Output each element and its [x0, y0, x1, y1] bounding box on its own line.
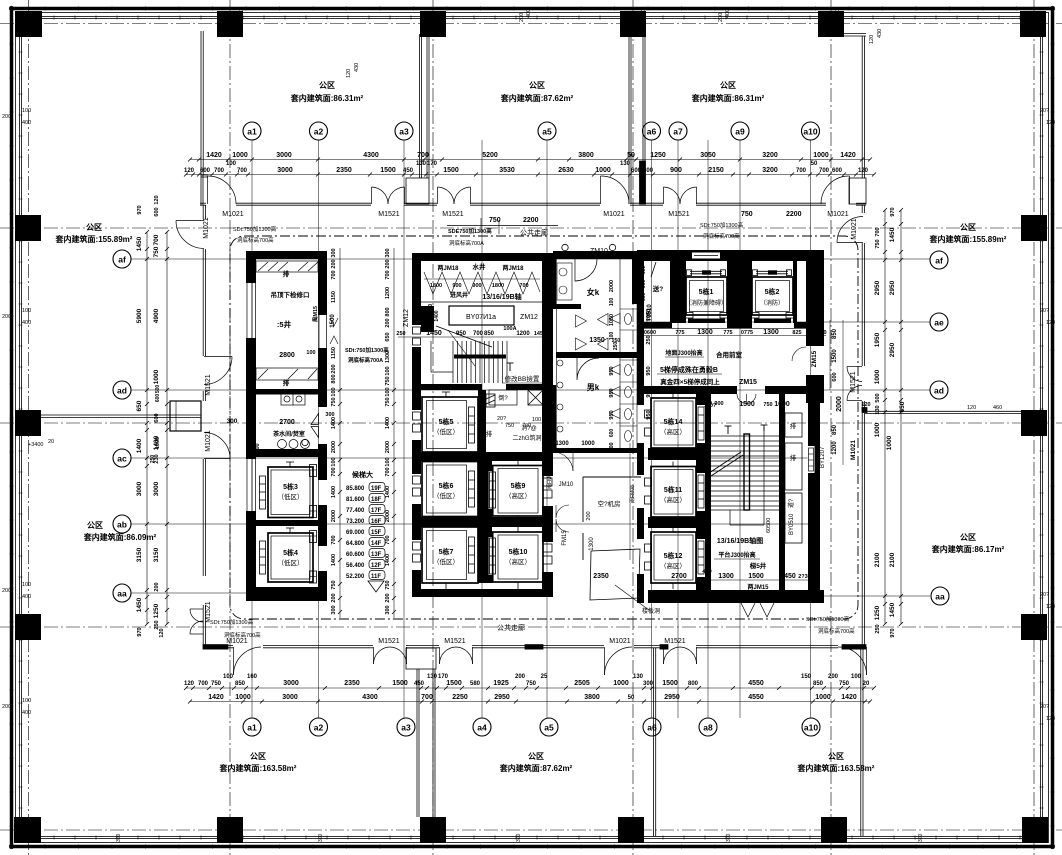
- svg-text:梯5井: 梯5井: [750, 561, 767, 570]
- svg-text:M1521: M1521: [850, 371, 857, 393]
- svg-text:50: 50: [811, 161, 818, 167]
- svg-text:3000: 3000: [277, 167, 293, 174]
- svg-text:a5: a5: [544, 723, 554, 733]
- svg-text:5梯停成殊在勇毅B: 5梯停成殊在勇毅B: [660, 365, 718, 374]
- svg-text:M1521: M1521: [205, 374, 212, 396]
- svg-text:修改BB撿置: 修改BB撿置: [505, 374, 540, 383]
- svg-text:M1021: M1021: [609, 638, 631, 645]
- svg-text:a6: a6: [647, 127, 657, 137]
- svg-text:5栋5: 5栋5: [439, 417, 454, 426]
- svg-text:600: 600: [832, 372, 838, 381]
- svg-text:100: 100: [385, 457, 391, 466]
- svg-text:300: 300: [385, 248, 391, 257]
- svg-text:60.600: 60.600: [346, 552, 365, 558]
- svg-text:700: 700: [796, 168, 807, 174]
- svg-text:200: 200: [828, 13, 834, 22]
- svg-text:2350: 2350: [336, 167, 352, 174]
- svg-text:300: 300: [255, 443, 261, 452]
- svg-text:送?: 送?: [652, 284, 664, 293]
- svg-text:100: 100: [22, 582, 31, 588]
- svg-text:1000: 1000: [235, 694, 251, 701]
- svg-text:1400: 1400: [153, 435, 160, 450]
- svg-text:3000: 3000: [283, 680, 299, 687]
- svg-text:52.200: 52.200: [346, 574, 365, 580]
- svg-text:BY0510: BY0510: [789, 513, 795, 535]
- svg-text:兩FM06: 兩FM06: [547, 523, 553, 541]
- svg-text:1250: 1250: [650, 152, 666, 159]
- svg-text:ZM15: ZM15: [739, 379, 757, 386]
- svg-text:750: 750: [741, 211, 753, 218]
- svg-text:1800: 1800: [430, 283, 442, 289]
- svg-text:970: 970: [137, 205, 143, 214]
- svg-text:1000: 1000: [581, 441, 595, 447]
- svg-text:700: 700: [385, 535, 391, 544]
- svg-text:850: 850: [832, 424, 838, 435]
- svg-text:100: 100: [226, 161, 237, 167]
- svg-text:700: 700: [875, 227, 881, 236]
- svg-text:1250: 1250: [874, 605, 881, 620]
- svg-text:850: 850: [484, 331, 495, 337]
- svg-text:2000: 2000: [385, 441, 391, 453]
- svg-text:850: 850: [832, 328, 838, 339]
- svg-text:1450: 1450: [534, 331, 546, 337]
- svg-text:1300: 1300: [589, 537, 595, 551]
- svg-text:吊顶下检修口: 吊顶下检修口: [271, 290, 310, 299]
- svg-text:地面J300抬高: 地面J300抬高: [665, 349, 702, 357]
- svg-text:（高区）: （高区）: [505, 491, 531, 500]
- svg-text:120: 120: [869, 35, 875, 44]
- svg-text:套内建筑面:155.89m²: 套内建筑面:155.89m²: [929, 234, 1007, 244]
- svg-text:700: 700: [331, 270, 337, 279]
- svg-text:775: 775: [723, 330, 732, 336]
- svg-text:775: 775: [675, 330, 684, 336]
- svg-text:a3: a3: [401, 723, 411, 733]
- svg-text:3800: 3800: [584, 694, 600, 701]
- svg-text:道?: 道?: [787, 498, 795, 508]
- svg-text:20?: 20?: [1040, 592, 1049, 598]
- svg-text:（消防）: （消防）: [760, 299, 784, 307]
- svg-text:300: 300: [227, 418, 238, 425]
- svg-text:750: 750: [331, 397, 337, 406]
- svg-text:ZM12: ZM12: [403, 309, 410, 327]
- svg-text:套内建筑面:87.62m²: 套内建筑面:87.62m²: [500, 93, 574, 103]
- svg-text:800: 800: [546, 276, 552, 285]
- svg-text:2250: 2250: [452, 694, 468, 701]
- svg-text:1150: 1150: [331, 347, 337, 359]
- svg-text:1450: 1450: [136, 597, 143, 612]
- svg-text:SDt:750加1300高: SDt:750加1300高: [806, 615, 850, 623]
- svg-text:970: 970: [890, 207, 896, 216]
- svg-text:200: 200: [154, 582, 160, 591]
- svg-text:200: 200: [586, 511, 592, 520]
- svg-text:950: 950: [609, 410, 615, 419]
- svg-text:套内建筑面:155.89m²: 套内建筑面:155.89m²: [55, 234, 133, 244]
- svg-text:公区: 公区: [960, 533, 976, 542]
- svg-text:650: 650: [385, 332, 391, 341]
- svg-text:2200: 2200: [523, 217, 539, 224]
- svg-text:950: 950: [609, 366, 615, 375]
- svg-text:19F: 19F: [371, 486, 382, 492]
- svg-text:2505: 2505: [574, 680, 590, 687]
- svg-text:250: 250: [646, 335, 652, 344]
- svg-text:120: 120: [346, 69, 352, 78]
- svg-text:700: 700: [473, 331, 484, 337]
- svg-text:M1021: M1021: [851, 218, 858, 240]
- svg-text:ZM12: ZM12: [520, 314, 538, 321]
- svg-text:洞底标高700A: 洞底标高700A: [449, 239, 484, 247]
- svg-text:1400: 1400: [331, 554, 337, 566]
- svg-text:700: 700: [331, 535, 337, 544]
- svg-text:300: 300: [426, 833, 432, 842]
- svg-text:18F: 18F: [371, 497, 382, 503]
- svg-text:兩FM08: 兩FM08: [630, 485, 636, 503]
- svg-text:200: 200: [331, 259, 337, 268]
- svg-text:950: 950: [609, 388, 615, 397]
- svg-text:950: 950: [646, 366, 652, 375]
- svg-text:合用前室: 合用前室: [715, 350, 743, 359]
- svg-text:0775: 0775: [741, 330, 753, 336]
- svg-text:25: 25: [541, 674, 548, 680]
- svg-text:1000: 1000: [613, 680, 629, 687]
- svg-text:69.000: 69.000: [346, 530, 365, 536]
- svg-text:（低区）: （低区）: [278, 558, 304, 567]
- svg-text:1000: 1000: [815, 694, 831, 701]
- svg-text::5井: :5井: [277, 319, 292, 329]
- svg-text:750: 750: [875, 239, 881, 248]
- svg-text:5栋14: 5栋14: [664, 417, 683, 426]
- svg-text:300: 300: [918, 833, 924, 842]
- svg-text:平台J300抬高: 平台J300抬高: [718, 551, 755, 559]
- svg-text:5栋2: 5栋2: [765, 287, 780, 296]
- svg-text:170: 170: [427, 161, 438, 167]
- svg-text:200: 200: [385, 593, 391, 602]
- svg-text:1300: 1300: [385, 351, 391, 363]
- svg-text:1300: 1300: [718, 573, 734, 580]
- svg-text:1400: 1400: [331, 486, 337, 498]
- svg-text:a7: a7: [673, 127, 683, 137]
- svg-text:ad: ad: [117, 386, 127, 396]
- svg-text:2700: 2700: [671, 573, 687, 580]
- svg-text:300: 300: [628, 833, 634, 842]
- svg-text:900: 900: [472, 283, 481, 289]
- svg-text:SDt:750加1300高: SDt:750加1300高: [233, 225, 277, 233]
- svg-text:120: 120: [154, 195, 160, 204]
- svg-text:400: 400: [22, 320, 31, 326]
- svg-text:2000: 2000: [609, 280, 615, 292]
- svg-text:200: 200: [828, 674, 839, 680]
- svg-text:排: 排: [283, 269, 290, 278]
- svg-text:750: 750: [526, 681, 537, 687]
- svg-text:200: 200: [515, 674, 526, 680]
- svg-text:300: 300: [817, 330, 826, 336]
- svg-text:750: 750: [331, 580, 337, 589]
- svg-text:M1021: M1021: [203, 217, 210, 239]
- svg-text:1300: 1300: [697, 329, 713, 336]
- svg-text:1050: 1050: [609, 314, 615, 326]
- svg-text:ad: ad: [934, 386, 944, 396]
- svg-text:600: 600: [609, 429, 615, 438]
- svg-text:排: 排: [283, 378, 290, 387]
- svg-text:4900: 4900: [153, 308, 160, 323]
- svg-text:850: 850: [235, 681, 246, 687]
- svg-text:250: 250: [613, 342, 619, 351]
- svg-text:2950: 2950: [494, 694, 510, 701]
- svg-text:1000: 1000: [700, 401, 712, 407]
- svg-text:600: 600: [832, 168, 843, 174]
- svg-text:16F: 16F: [371, 519, 382, 525]
- svg-text:200: 200: [385, 259, 391, 268]
- svg-text:a5: a5: [542, 127, 552, 137]
- svg-text:120: 120: [967, 405, 976, 411]
- svg-text:1400: 1400: [385, 554, 391, 566]
- svg-text:60500: 60500: [766, 518, 772, 533]
- svg-text:400: 400: [526, 9, 532, 18]
- svg-text:14F: 14F: [371, 541, 382, 547]
- svg-text:600: 600: [155, 394, 161, 403]
- svg-text:两JM18: 两JM18: [502, 265, 524, 272]
- svg-text:700: 700: [153, 234, 160, 245]
- svg-text:700: 700: [519, 283, 528, 289]
- svg-text:5栋7: 5栋7: [439, 547, 454, 556]
- svg-text:公区: 公区: [529, 81, 545, 90]
- svg-text:公区: 公区: [720, 81, 736, 90]
- svg-text:公区: 公区: [319, 81, 335, 90]
- svg-text:700: 700: [522, 423, 531, 429]
- svg-text:2350: 2350: [344, 680, 360, 687]
- svg-text:77.400: 77.400: [346, 508, 365, 514]
- svg-text:公区: 公区: [960, 223, 976, 232]
- svg-text:套内建筑面:163.58m²: 套内建筑面:163.58m²: [219, 763, 297, 773]
- svg-text:2950: 2950: [874, 280, 881, 295]
- svg-text:1000: 1000: [886, 435, 893, 450]
- svg-text:450: 450: [403, 168, 414, 174]
- svg-text:300: 300: [331, 605, 337, 614]
- svg-text:400: 400: [239, 9, 245, 18]
- svg-text:200: 200: [519, 13, 525, 22]
- svg-text:空?机房: 空?机房: [597, 499, 620, 508]
- svg-text:64.800: 64.800: [346, 541, 365, 547]
- svg-text:M1521: M1521: [664, 638, 686, 645]
- svg-text:1000: 1000: [874, 422, 881, 437]
- svg-text:700: 700: [421, 694, 433, 701]
- svg-text:1420: 1420: [840, 152, 856, 159]
- svg-text:（低区）: （低区）: [433, 557, 459, 566]
- svg-text:aa: aa: [935, 592, 945, 602]
- svg-text:750: 750: [211, 681, 222, 687]
- svg-text:M1521: M1521: [668, 211, 690, 218]
- svg-text:750: 750: [385, 397, 391, 406]
- svg-text:0600: 0600: [644, 330, 656, 336]
- svg-text:20?: 20?: [1040, 108, 1049, 114]
- svg-text:ac: ac: [117, 454, 127, 464]
- svg-text:900: 900: [670, 167, 682, 174]
- svg-text:300: 300: [331, 248, 337, 257]
- svg-text:20?: 20?: [497, 416, 506, 422]
- svg-text:3050: 3050: [700, 152, 716, 159]
- svg-text:100: 100: [331, 457, 337, 466]
- svg-text:13F: 13F: [371, 552, 382, 558]
- svg-text:1450: 1450: [889, 227, 896, 242]
- svg-text:a9: a9: [735, 127, 745, 137]
- svg-text:倒?: 倒?: [498, 394, 508, 402]
- svg-text:430: 430: [877, 29, 883, 38]
- svg-text:a8: a8: [703, 723, 713, 733]
- svg-text:（低区）: （低区）: [433, 491, 459, 500]
- svg-text:2000: 2000: [836, 396, 843, 412]
- svg-text:套内建筑面:86.31m²: 套内建筑面:86.31m²: [691, 93, 765, 103]
- svg-text:进风井: 进风井: [450, 291, 468, 299]
- svg-text:套内建筑面:86.31m²: 套内建筑面:86.31m²: [290, 93, 364, 103]
- svg-text:1500: 1500: [443, 167, 459, 174]
- svg-text:15F: 15F: [371, 530, 382, 536]
- svg-text:公区: 公区: [828, 752, 844, 761]
- svg-text:套内建筑面:86.17m²: 套内建筑面:86.17m²: [931, 544, 1005, 554]
- svg-text:2800: 2800: [279, 352, 295, 359]
- svg-text:3000: 3000: [136, 481, 143, 496]
- svg-text:兩FM06: 兩FM06: [547, 471, 553, 489]
- svg-text:900: 900: [452, 283, 461, 289]
- svg-text:1450: 1450: [889, 602, 896, 617]
- svg-text:300: 300: [116, 833, 122, 842]
- svg-text:700: 700: [385, 270, 391, 279]
- svg-text:5栋11: 5栋11: [664, 485, 682, 494]
- svg-text:120: 120: [1046, 716, 1055, 722]
- svg-text:800: 800: [688, 681, 699, 687]
- svg-text:1200: 1200: [516, 331, 530, 337]
- svg-text:1420: 1420: [208, 694, 224, 701]
- svg-text:FM15: FM15: [562, 530, 568, 546]
- svg-text:73.200: 73.200: [346, 519, 365, 525]
- svg-text:100: 100: [22, 108, 31, 114]
- svg-text:600: 600: [200, 168, 211, 174]
- svg-text:200: 200: [232, 13, 238, 22]
- svg-text:洞底标高700高: 洞底标高700高: [237, 236, 274, 244]
- svg-text:12F: 12F: [371, 563, 382, 569]
- svg-text:130: 130: [633, 674, 644, 680]
- svg-text:（高区）: （高区）: [505, 557, 531, 566]
- svg-text:1400: 1400: [385, 486, 391, 498]
- svg-text:ab: ab: [117, 520, 127, 530]
- svg-text:400: 400: [725, 9, 731, 18]
- svg-text:M1521: M1521: [378, 638, 400, 645]
- svg-text:100: 100: [223, 674, 234, 680]
- svg-text:M1021: M1021: [603, 211, 625, 218]
- svg-text:1150: 1150: [331, 291, 337, 303]
- svg-text:候梯大: 候梯大: [352, 470, 373, 479]
- svg-text:100: 100: [306, 350, 315, 356]
- svg-text:1500: 1500: [739, 401, 755, 408]
- svg-text:2100: 2100: [874, 552, 881, 567]
- svg-text:120: 120: [1046, 604, 1055, 610]
- svg-text:（高区）: （高区）: [660, 427, 686, 436]
- svg-text:BY1207: BY1207: [820, 446, 826, 468]
- svg-text:3200: 3200: [762, 152, 778, 159]
- svg-text:100: 100: [609, 298, 615, 307]
- svg-text:2700: 2700: [279, 419, 295, 426]
- svg-text:120: 120: [1046, 320, 1055, 326]
- svg-text:600: 600: [546, 291, 552, 300]
- svg-text:a1: a1: [247, 127, 257, 137]
- svg-text:700: 700: [198, 681, 209, 687]
- svg-text:aa: aa: [117, 589, 127, 599]
- svg-text:2950: 2950: [889, 342, 896, 357]
- svg-text:公共走廊: 公共走廊: [520, 228, 548, 237]
- svg-text:5栋1: 5栋1: [699, 287, 714, 296]
- svg-text:1200: 1200: [385, 287, 391, 299]
- svg-text:1400: 1400: [136, 438, 143, 453]
- svg-text:2630: 2630: [558, 167, 574, 174]
- svg-text:两JM18: 两JM18: [437, 265, 459, 272]
- svg-text:1200: 1200: [832, 441, 838, 455]
- svg-text:900: 900: [609, 442, 615, 451]
- svg-text:120: 120: [1046, 120, 1055, 126]
- svg-text:81.600: 81.600: [346, 497, 365, 503]
- svg-text:SDE750加1300高: SDE750加1300高: [448, 227, 492, 235]
- svg-text:13/16/19B轴图: 13/16/19B轴图: [717, 536, 763, 545]
- svg-text:400: 400: [22, 594, 31, 600]
- svg-text:800: 800: [385, 307, 391, 316]
- svg-text:套内建筑面:86.09m²: 套内建筑面:86.09m²: [83, 532, 157, 542]
- svg-text:3530: 3530: [499, 167, 515, 174]
- svg-text:20: 20: [863, 681, 870, 687]
- svg-text:a4: a4: [477, 723, 487, 733]
- svg-text:750: 750: [385, 580, 391, 589]
- svg-text:1000: 1000: [813, 152, 829, 159]
- svg-text:af: af: [118, 255, 126, 265]
- svg-text:2?300: 2?300: [798, 574, 814, 580]
- svg-text:两JM15: 两JM15: [747, 584, 769, 591]
- svg-text:250: 250: [396, 331, 405, 337]
- svg-text:300: 300: [1026, 833, 1032, 842]
- svg-text:ae: ae: [934, 318, 944, 328]
- svg-text:1400: 1400: [434, 310, 440, 321]
- svg-text:230: 230: [154, 454, 160, 463]
- svg-text:洞底标高700高: 洞底标高700高: [224, 631, 261, 639]
- svg-text:公共走廊: 公共走廊: [497, 623, 525, 632]
- svg-text:120: 120: [184, 681, 195, 687]
- svg-text:20: 20: [48, 439, 54, 445]
- svg-text:850: 850: [813, 681, 824, 687]
- svg-text:4300: 4300: [362, 694, 378, 701]
- svg-text:650: 650: [136, 400, 143, 411]
- svg-text:200: 200: [2, 588, 11, 594]
- svg-text:100A: 100A: [503, 326, 516, 332]
- svg-text:a10: a10: [804, 723, 818, 733]
- svg-text:200: 200: [634, 13, 640, 22]
- svg-text:4550: 4550: [748, 680, 764, 687]
- svg-text:排: 排: [790, 453, 797, 462]
- svg-text:5栋4: 5栋4: [283, 548, 298, 557]
- svg-text:5栋9: 5栋9: [511, 481, 526, 490]
- svg-text:BY07И1a: BY07И1a: [466, 314, 496, 321]
- svg-text:200: 200: [718, 13, 724, 22]
- svg-text:公区: 公区: [250, 752, 266, 761]
- svg-text:400: 400: [641, 9, 647, 18]
- svg-text:1000: 1000: [774, 401, 790, 408]
- svg-text:1420: 1420: [841, 694, 857, 701]
- svg-text:楼板洞: 楼板洞: [642, 607, 660, 615]
- svg-text:250: 250: [154, 620, 160, 629]
- svg-text:3200: 3200: [762, 167, 778, 174]
- svg-text:水井: 水井: [473, 262, 487, 271]
- svg-text:800: 800: [331, 374, 337, 383]
- svg-text:1400: 1400: [331, 417, 337, 429]
- svg-text:750: 750: [153, 246, 160, 257]
- svg-text:1420: 1420: [206, 152, 222, 159]
- svg-text:400: 400: [22, 120, 31, 126]
- svg-text:100: 100: [385, 387, 391, 396]
- svg-text:300: 300: [226, 833, 232, 842]
